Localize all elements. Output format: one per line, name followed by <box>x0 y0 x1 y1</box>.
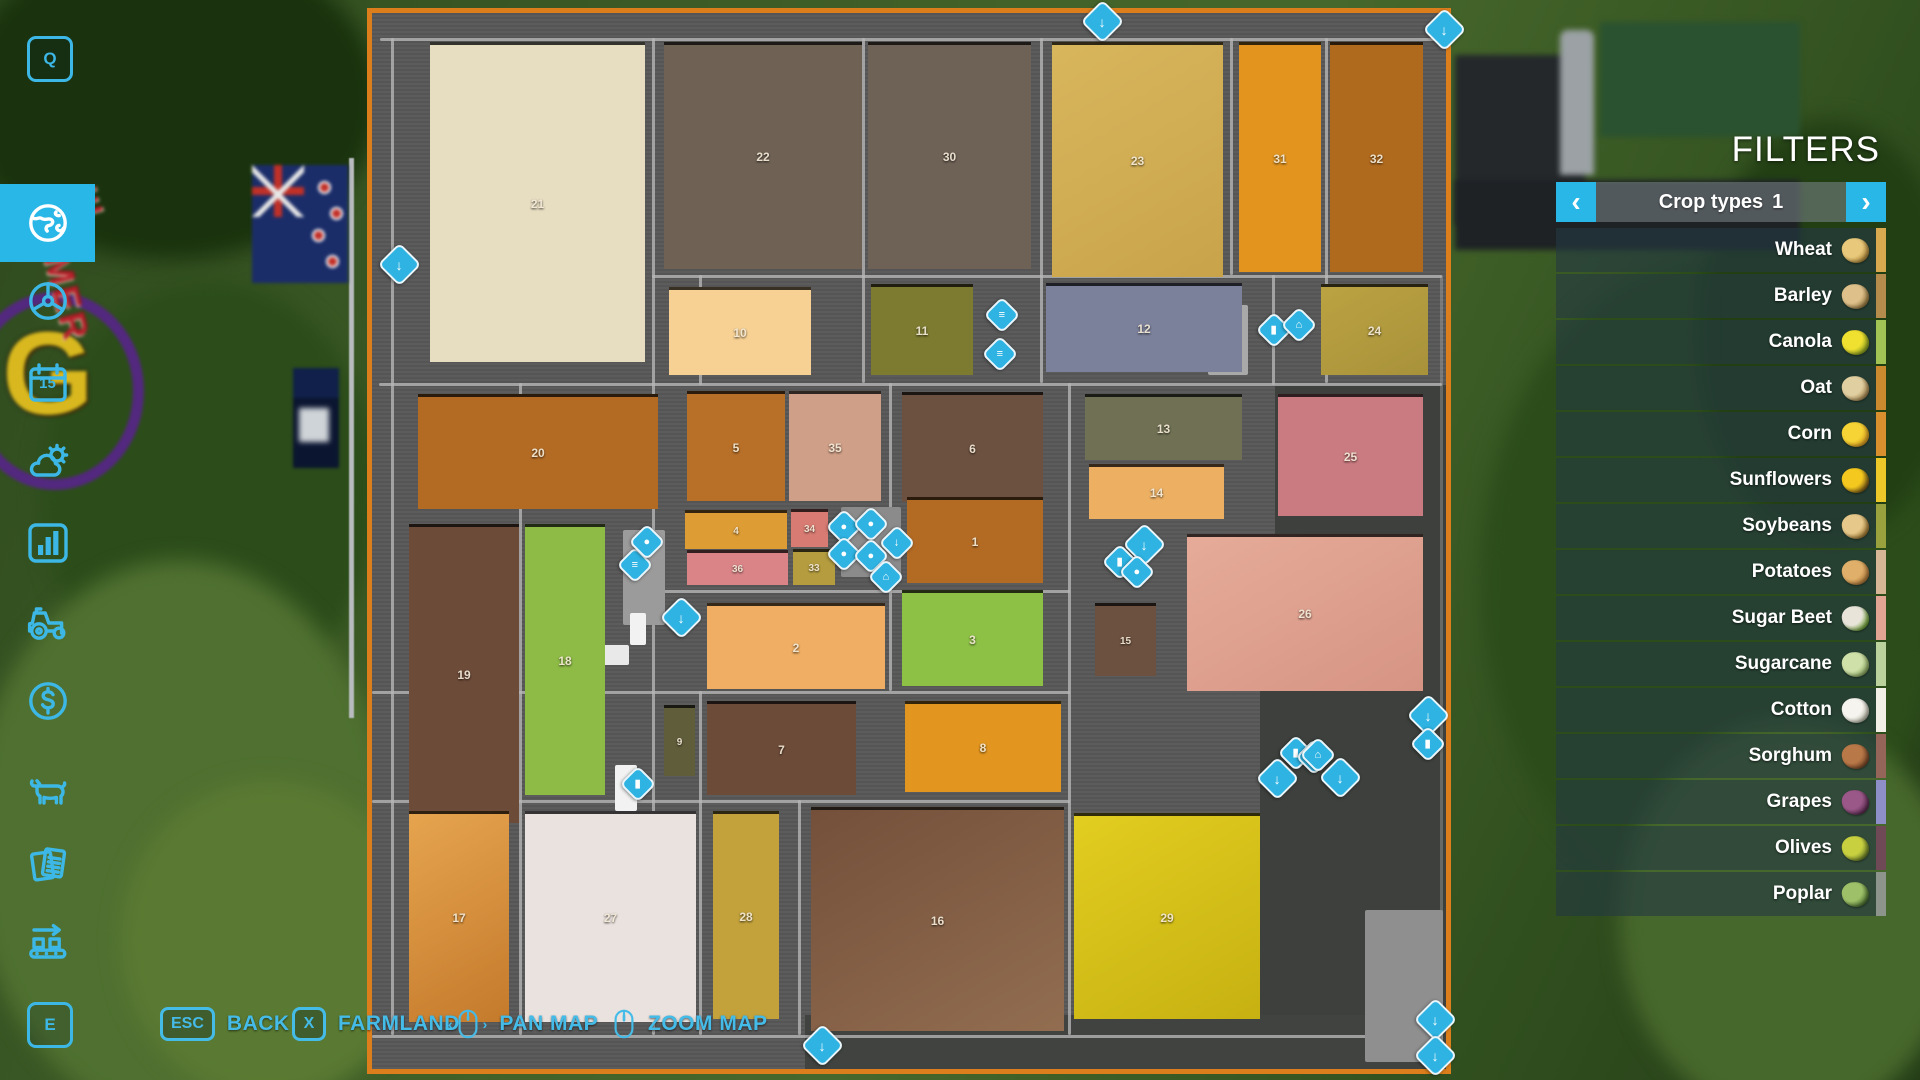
field-number: 23 <box>1131 154 1144 168</box>
field-number: 17 <box>452 911 465 925</box>
field-number: 33 <box>808 563 819 574</box>
statistics-icon <box>24 519 72 567</box>
finances-icon <box>24 677 72 725</box>
crop-color-stripe <box>1876 872 1886 916</box>
field-18[interactable]: 18 <box>525 524 605 795</box>
crop-color-stripe <box>1876 734 1886 778</box>
road <box>652 275 1442 278</box>
field-number: 7 <box>778 743 785 757</box>
canola-icon <box>1840 328 1870 357</box>
field-number: 32 <box>1370 152 1383 166</box>
field-16[interactable]: 16 <box>811 807 1064 1031</box>
field-number: 29 <box>1160 911 1173 925</box>
prev-category-button[interactable]: ‹ <box>1556 182 1596 222</box>
field-number: 24 <box>1368 324 1381 338</box>
sidebar-item-map[interactable] <box>0 184 95 262</box>
crop-filter-barley[interactable]: Barley <box>1556 274 1886 318</box>
field-number: 18 <box>558 654 571 668</box>
field-8[interactable]: 8 <box>905 701 1061 792</box>
filter-category-selector: ‹ Crop types 1 › <box>1556 182 1886 222</box>
crop-label: Sunflowers <box>1730 469 1832 491</box>
category-name: Crop types <box>1659 191 1763 214</box>
crop-filter-oat[interactable]: Oat <box>1556 366 1886 410</box>
field-number: 34 <box>804 524 815 535</box>
crop-label: Barley <box>1774 285 1832 307</box>
field-28[interactable]: 28 <box>713 811 779 1019</box>
crop-filter-sugarcane[interactable]: Sugarcane <box>1556 642 1886 686</box>
sunflowers-icon <box>1840 466 1870 495</box>
corn-icon <box>1840 420 1870 449</box>
crop-label: Sugar Beet <box>1732 607 1832 629</box>
crop-color-stripe <box>1876 320 1886 364</box>
field-number: 9 <box>677 737 683 748</box>
field-12[interactable]: 12 <box>1046 283 1242 372</box>
field-29[interactable]: 29 <box>1074 813 1260 1019</box>
crop-label: Olives <box>1775 837 1832 859</box>
category-label: Crop types 1 <box>1596 182 1846 222</box>
game-screen: G RIE MER 212230233132101112242053561314… <box>0 0 1920 1080</box>
crop-color-stripe <box>1876 228 1886 272</box>
crop-label: Potatoes <box>1752 561 1832 583</box>
soybeans-icon <box>1840 512 1870 541</box>
sidebar-item-animals[interactable] <box>0 752 95 830</box>
filters-title: FILTERS <box>1556 130 1886 174</box>
weather-icon <box>24 439 72 487</box>
esc-key: ESC <box>160 1007 215 1041</box>
crop-label: Wheat <box>1775 239 1832 261</box>
field-number: 11 <box>916 324 929 338</box>
field-27[interactable]: 27 <box>525 811 696 1022</box>
game-menu-sidebar: Q 15 E <box>0 0 95 1080</box>
field-24[interactable]: 24 <box>1321 284 1428 375</box>
sidebar-item-calendar[interactable]: 15 <box>0 344 95 422</box>
category-page: 1 <box>1772 191 1783 214</box>
crop-color-stripe <box>1876 366 1886 410</box>
pan-map-control[interactable]: ‹ › PAN MAP <box>448 1002 598 1046</box>
production-icon <box>24 917 72 965</box>
field-13[interactable]: 13 <box>1085 394 1242 460</box>
field-number: 25 <box>1344 450 1357 464</box>
field-number: 31 <box>1273 152 1286 166</box>
road <box>1230 38 1233 275</box>
train-station-icon: ≡ <box>982 336 1019 373</box>
field-number: 26 <box>1298 607 1311 621</box>
mouse-pan-icon: ‹ › <box>448 1008 487 1040</box>
field-2[interactable]: 2 <box>707 603 885 689</box>
field-4[interactable]: 4 <box>685 510 787 549</box>
farmland-button[interactable]: X FARMLAND <box>292 1002 460 1046</box>
potatoes-icon <box>1840 558 1870 587</box>
new-zealand-flag <box>252 165 348 283</box>
field-32[interactable]: 32 <box>1330 42 1423 272</box>
crop-color-stripe <box>1876 504 1886 548</box>
field-number: 15 <box>1120 636 1131 647</box>
crop-filter-grapes[interactable]: Grapes <box>1556 780 1886 824</box>
crop-color-stripe <box>1876 274 1886 318</box>
vehicles-icon <box>24 599 72 647</box>
field-number: 6 <box>969 442 976 456</box>
crop-label: Cotton <box>1771 699 1832 721</box>
sidebar-item-vehicles[interactable] <box>0 584 95 662</box>
road <box>380 38 1442 41</box>
crop-color-stripe <box>1876 780 1886 824</box>
road <box>391 38 394 1035</box>
field-9[interactable]: 9 <box>664 705 695 776</box>
cotton-icon <box>1840 696 1870 725</box>
field-number: 3 <box>969 633 976 647</box>
sidebar-item-ai-workers[interactable] <box>0 262 95 340</box>
road <box>798 800 801 1035</box>
crop-filter-corn[interactable]: Corn <box>1556 412 1886 456</box>
crop-label: Sugarcane <box>1735 653 1832 675</box>
field-number: 10 <box>733 326 746 340</box>
field-31[interactable]: 31 <box>1239 42 1321 272</box>
road <box>1040 38 1043 383</box>
field-7[interactable]: 7 <box>707 701 856 795</box>
crop-filter-cotton[interactable]: Cotton <box>1556 688 1886 732</box>
field-number: 1 <box>972 535 979 549</box>
crop-filter-sunflowers[interactable]: Sunflowers <box>1556 458 1886 502</box>
poplar-icon <box>1840 880 1870 909</box>
road <box>379 383 1442 386</box>
crop-filter-poplar[interactable]: Poplar <box>1556 872 1886 916</box>
mouse-zoom-icon <box>612 1008 636 1040</box>
filters-panel: FILTERS ‹ Crop types 1 › WheatBarleyCano… <box>1556 130 1886 918</box>
field-26[interactable]: 26 <box>1187 534 1423 691</box>
barn <box>1600 22 1800 137</box>
crop-label: Canola <box>1769 331 1832 353</box>
crop-label: Corn <box>1788 423 1832 445</box>
crop-color-stripe <box>1876 688 1886 732</box>
back-button[interactable]: ESC BACK <box>160 1002 290 1046</box>
crop-label: Grapes <box>1767 791 1832 813</box>
sidebar-item-statistics[interactable] <box>0 504 95 582</box>
field-25[interactable]: 25 <box>1278 394 1423 516</box>
crop-label: Sorghum <box>1749 745 1832 767</box>
field-10[interactable]: 10 <box>669 287 811 375</box>
field-number: 12 <box>1137 322 1150 336</box>
field-number: 19 <box>457 668 470 682</box>
calendar-icon: 15 <box>24 359 72 407</box>
crop-filter-olives[interactable]: Olives <box>1556 826 1886 870</box>
crop-color-stripe <box>1876 550 1886 594</box>
field-11[interactable]: 11 <box>871 284 973 375</box>
map-structure <box>603 645 629 665</box>
contracts-icon <box>24 841 72 889</box>
crop-color-stripe <box>1876 642 1886 686</box>
field-number: 13 <box>1157 422 1170 436</box>
next-category-button[interactable]: › <box>1846 182 1886 222</box>
sugar-beet-icon <box>1840 604 1870 633</box>
crop-color-stripe <box>1876 412 1886 456</box>
wheat-icon <box>1840 236 1870 265</box>
field-number: 28 <box>739 910 752 924</box>
field-number: 2 <box>793 641 800 655</box>
field-5[interactable]: 5 <box>687 391 785 501</box>
download-station-icon: ↓ <box>377 242 421 286</box>
crop-filter-potatoes[interactable]: Potatoes <box>1556 550 1886 594</box>
field-number: 20 <box>531 446 544 460</box>
oat-icon <box>1840 374 1870 403</box>
field-number: 36 <box>732 564 743 575</box>
bottom-bar: ESC BACK X FARMLAND ‹ › PAN MAP ZOOM MAP <box>0 1002 1920 1050</box>
crop-filter-sorghum[interactable]: Sorghum <box>1556 734 1886 778</box>
crop-filter-sugar-beet[interactable]: Sugar Beet <box>1556 596 1886 640</box>
field-17[interactable]: 17 <box>409 811 509 1022</box>
road <box>1068 383 1071 1035</box>
crop-filter-soybeans[interactable]: Soybeans <box>1556 504 1886 548</box>
animals-icon <box>24 767 72 815</box>
road <box>699 691 702 1035</box>
download-station-icon: ↓ <box>659 595 703 639</box>
prev-menu-keycap[interactable]: Q <box>27 36 73 82</box>
barley-icon <box>1840 282 1870 311</box>
crop-filter-list: WheatBarleyCanolaOatCornSunflowersSoybea… <box>1556 228 1886 916</box>
flag-pole <box>349 158 354 718</box>
farmland-map[interactable]: 2122302331321011122420535613142543436331… <box>367 8 1451 1074</box>
field-21[interactable]: 21 <box>430 42 645 362</box>
x-key: X <box>292 1007 326 1041</box>
q-key: Q <box>27 36 73 82</box>
field-23[interactable]: 23 <box>1052 42 1223 277</box>
field-number: 21 <box>531 197 544 211</box>
field-19[interactable]: 19 <box>409 524 519 823</box>
field-34[interactable]: 34 <box>791 509 828 547</box>
ai-workers-icon <box>24 277 72 325</box>
road <box>862 38 865 383</box>
field-14[interactable]: 14 <box>1089 464 1224 519</box>
crop-label: Poplar <box>1773 883 1832 905</box>
field-number: 5 <box>733 441 740 455</box>
crop-label: Oat <box>1800 377 1832 399</box>
field-36[interactable]: 36 <box>687 550 788 585</box>
map-canvas: 2122302331321011122420535613142543436331… <box>372 13 1446 1069</box>
crop-color-stripe <box>1876 596 1886 640</box>
sidebar-item-weather[interactable] <box>0 424 95 502</box>
field-number: 4 <box>733 526 739 537</box>
sidebar-item-contracts[interactable] <box>0 826 95 904</box>
field-1[interactable]: 1 <box>907 497 1043 583</box>
crop-color-stripe <box>1876 458 1886 502</box>
field-number: 16 <box>931 914 944 928</box>
remembrance-flag <box>293 368 339 468</box>
field-22[interactable]: 22 <box>664 42 862 269</box>
sidebar-item-finances[interactable] <box>0 662 95 740</box>
grapes-icon <box>1840 788 1870 817</box>
field-number: 27 <box>604 911 617 925</box>
field-20[interactable]: 20 <box>418 394 658 509</box>
field-number: 8 <box>980 741 987 755</box>
field-number: 14 <box>1150 486 1163 500</box>
crop-color-stripe <box>1876 826 1886 870</box>
sidebar-item-production[interactable] <box>0 902 95 980</box>
field-number: 30 <box>943 150 956 164</box>
field-30[interactable]: 30 <box>868 42 1031 269</box>
crop-label: Soybeans <box>1742 515 1832 537</box>
train-station-icon: ≡ <box>984 297 1021 334</box>
field-number: 35 <box>828 441 841 455</box>
crop-filter-canola[interactable]: Canola <box>1556 320 1886 364</box>
crop-filter-wheat[interactable]: Wheat <box>1556 228 1886 272</box>
olives-icon <box>1840 834 1870 863</box>
map-icon <box>24 199 72 247</box>
field-15[interactable]: 15 <box>1095 603 1156 676</box>
calendar-day: 15 <box>24 375 72 392</box>
shop-icon: ⌂ <box>1281 307 1318 344</box>
field-6[interactable]: 6 <box>902 392 1043 502</box>
sugarcane-icon <box>1840 650 1870 679</box>
sorghum-icon <box>1840 742 1870 771</box>
map-structure <box>630 613 646 645</box>
field-35[interactable]: 35 <box>789 391 881 501</box>
field-number: 22 <box>756 150 769 164</box>
zoom-map-control[interactable]: ZOOM MAP <box>612 1002 768 1046</box>
field-3[interactable]: 3 <box>902 590 1043 686</box>
